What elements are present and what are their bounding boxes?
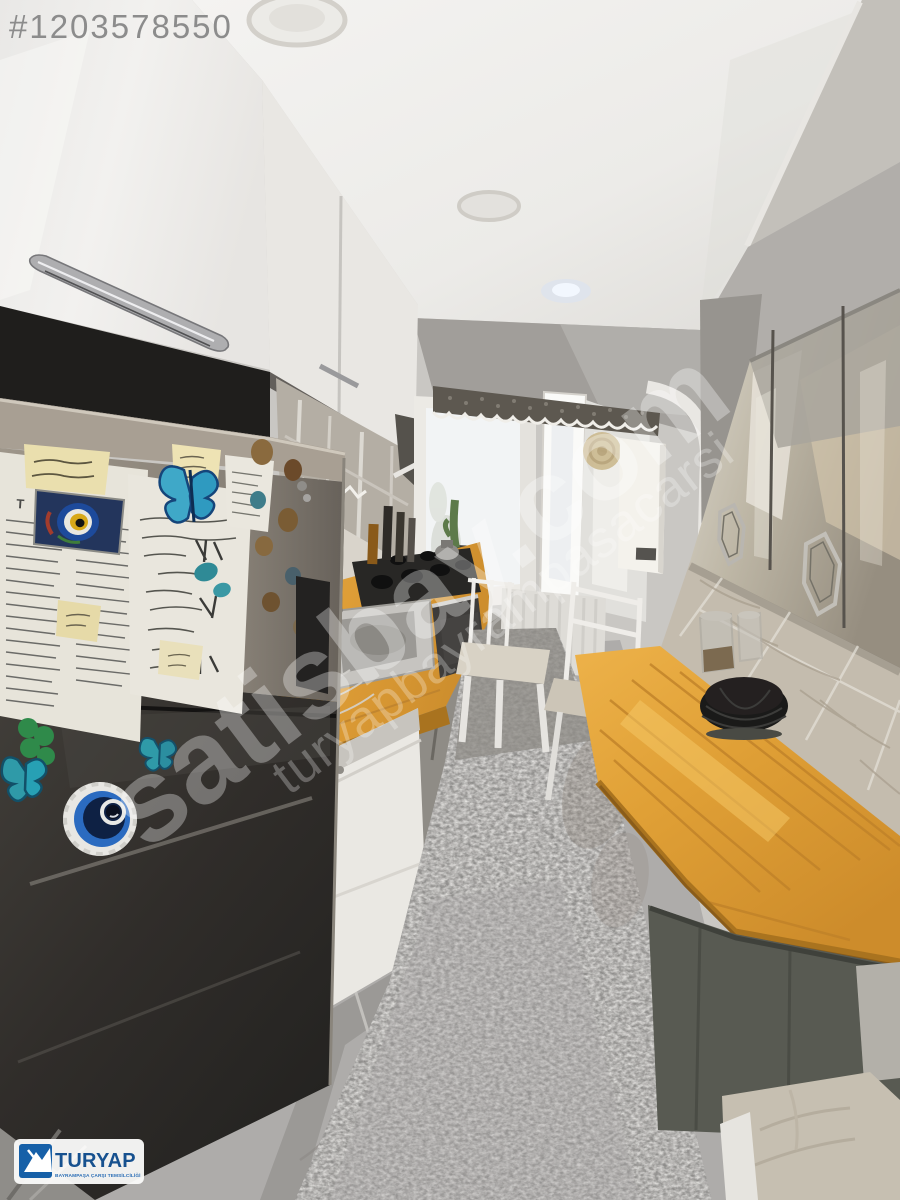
svg-text:T: T [16,496,25,512]
svg-text:TURYAP: TURYAP [55,1150,136,1172]
svg-text:#1203578550: #1203578550 [9,8,233,45]
